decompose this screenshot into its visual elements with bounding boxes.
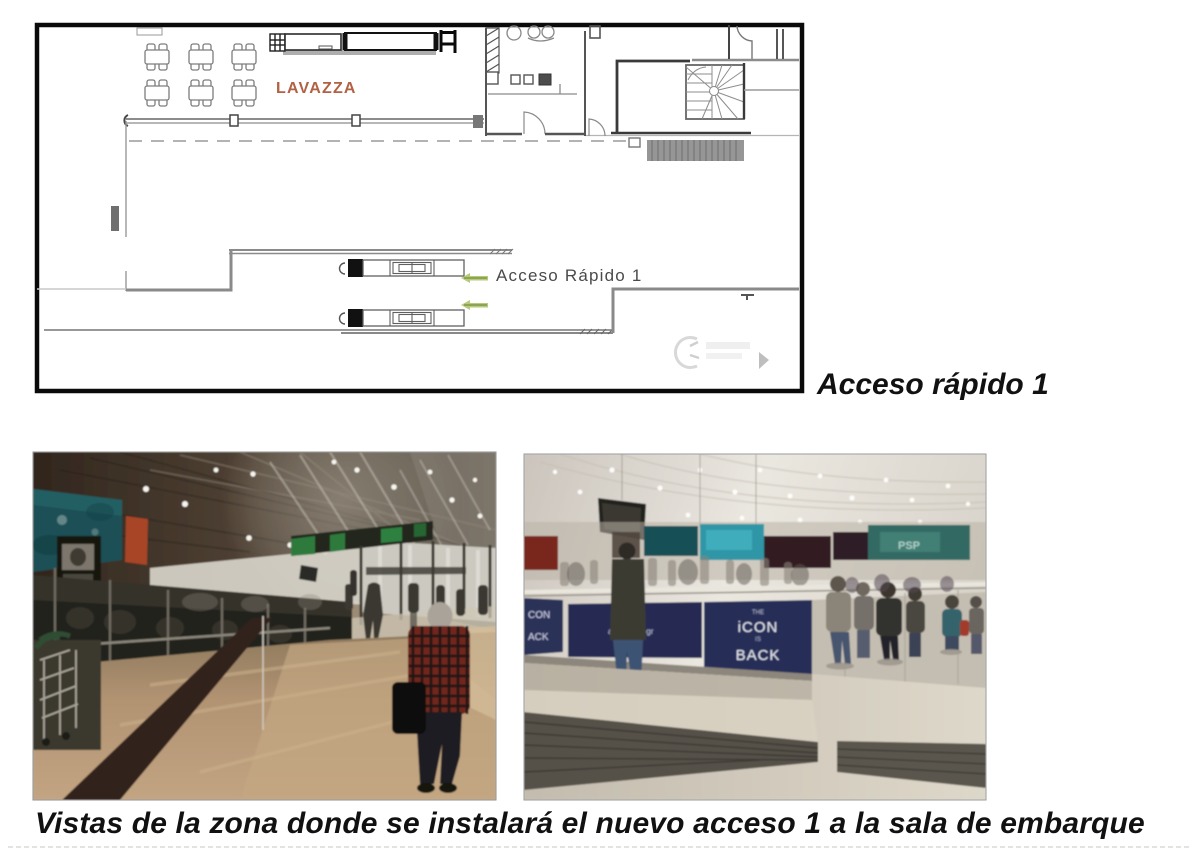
svg-text:BACK: BACK [736,647,781,664]
svg-text:ACK: ACK [528,632,549,643]
svg-text:iCON: iCON [738,619,779,636]
svg-text:IS: IS [755,637,761,643]
svg-text:CON: CON [528,610,550,621]
svg-text:Acceso Rápido 1: Acceso Rápido 1 [496,266,643,285]
svg-text:Acceso rápido 1: Acceso rápido 1 [816,368,1049,401]
svg-text:THE: THE [752,610,764,616]
svg-text:LAVAZZA: LAVAZZA [276,80,357,97]
svg-text:Vistas de la zona donde se ins: Vistas de la zona donde se instalará el … [35,807,1145,840]
svg-text:PSP: PSP [898,540,920,552]
